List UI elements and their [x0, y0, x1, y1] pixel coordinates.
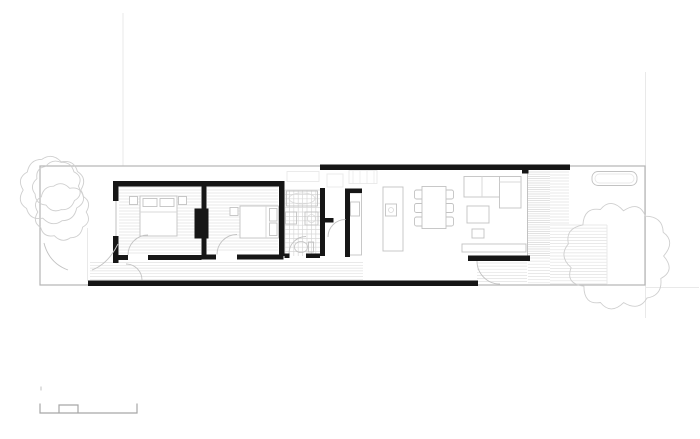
pillow [160, 199, 174, 207]
garden-path-arc [44, 243, 68, 270]
dining-table [422, 187, 446, 229]
bedroom-top-wall [113, 181, 285, 187]
floor-plan-page [0, 0, 700, 439]
wardrobe-block [195, 209, 209, 239]
skylight-kitchen-louvres [353, 171, 374, 184]
deck-boards-main [550, 225, 607, 284]
pillow [270, 223, 278, 236]
bedroom-2-south-wall [237, 255, 284, 260]
bathroom-door-swing [289, 237, 306, 254]
tv-bench [462, 244, 526, 252]
pillow [270, 209, 278, 222]
deck-boards-side-2 [550, 172, 569, 223]
bedroom-2-east-wall [279, 181, 285, 256]
deck-boards-lower [528, 258, 550, 283]
scale-bar [40, 404, 137, 414]
patio-boards [477, 263, 527, 282]
top-wall-column [522, 170, 529, 174]
bedroom-1-door-jamb-wall [113, 255, 128, 260]
deck-boards-side [528, 172, 550, 256]
nightstand [230, 208, 238, 216]
sofa-chaise [500, 177, 522, 209]
bathroom-east-wall [320, 188, 325, 256]
living-south-wall [468, 256, 530, 262]
south-outer-wall [88, 281, 478, 287]
west-wall-upper [113, 181, 119, 201]
coffee-table [467, 206, 489, 223]
bedroom-1-south-wall [148, 255, 202, 260]
bedroom-2-door-jamb-wall [202, 255, 217, 260]
kitchen-west-wall [345, 189, 350, 258]
nightstand [179, 197, 187, 205]
kitchen-island [383, 187, 403, 251]
kitchen-wall-stub [345, 189, 362, 194]
entry-door-swing [126, 264, 142, 280]
bedroom-divider-wall-lower [202, 238, 207, 256]
pouf [472, 229, 484, 238]
bedroom-2-door-swing [217, 235, 237, 255]
bathroom-wall-stub [325, 218, 334, 223]
bathroom-south-wall-east [306, 254, 320, 259]
pillow [143, 199, 157, 207]
skylight-hall [327, 174, 343, 187]
bedroom-divider-wall-upper [202, 187, 207, 209]
skylight-bathroom [287, 172, 319, 182]
bathroom-south-wall-west [285, 254, 290, 259]
living-top-wall [320, 165, 570, 171]
nightstand [130, 197, 138, 205]
deck-planter-inner [595, 174, 634, 183]
floor-plan-svg [0, 0, 700, 439]
washbasin [286, 212, 297, 224]
